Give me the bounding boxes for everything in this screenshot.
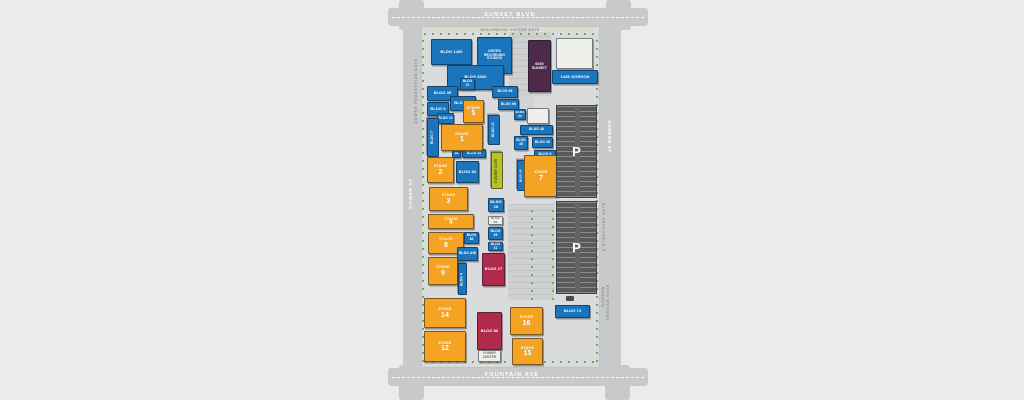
- stage-15[interactable]: STAGE15: [512, 338, 543, 365]
- building-10[interactable]: BLDG 10: [437, 113, 454, 124]
- building-29[interactable]: BLDG 29: [488, 227, 503, 240]
- stage-1[interactable]: STAGE1: [441, 124, 483, 151]
- stage-5[interactable]: STAGE5: [463, 100, 484, 123]
- gate-gower-pedestrian: GOWER PEDESTRIAN GATE: [414, 58, 418, 124]
- building-31[interactable]: BLDG 31: [488, 242, 503, 251]
- building-98-north[interactable]: BLDG 98: [492, 86, 518, 98]
- stage-12[interactable]: STAGE12: [424, 331, 466, 362]
- building-5b[interactable]: BLDG 5B: [488, 216, 503, 225]
- building-11[interactable]: BLDG 11: [488, 115, 500, 145]
- stage-9[interactable]: STAGE9: [428, 257, 458, 285]
- trees-top: [424, 33, 596, 35]
- building-28[interactable]: BLDG 28: [488, 198, 504, 212]
- gate-e-structure: E STRUCTURE GATE: [602, 202, 606, 251]
- parking-structure-south[interactable]: P: [556, 201, 597, 294]
- gate-gordon: GORDON: [601, 286, 605, 307]
- building-office[interactable]: [527, 108, 549, 124]
- building-1435-gordon[interactable]: 1435 GORDON: [552, 70, 598, 84]
- building-86[interactable]: BLDG 86: [477, 312, 502, 350]
- label-gower-st: GOWER ST: [408, 178, 413, 209]
- building-7[interactable]: BLDG 7: [427, 118, 439, 157]
- street-stub-bottom-right: [605, 365, 630, 400]
- label-sunset-blvd: SUNSET BLVD: [460, 12, 560, 18]
- label-gordon-st: GORDON ST: [607, 120, 612, 153]
- building-74[interactable]: BLDG 74: [555, 305, 590, 318]
- building-45[interactable]: BLDG 45: [514, 136, 528, 150]
- building-27[interactable]: BLDG 27: [482, 253, 505, 286]
- stage-3[interactable]: STAGE3: [429, 187, 468, 211]
- studio-lot-map: SUNSET BLVD FOUNTAIN AVE GOWER ST GORDON…: [0, 0, 1024, 400]
- building-gower-cafe[interactable]: GOWER CAFE: [491, 152, 503, 189]
- building-white-north[interactable]: [556, 38, 593, 69]
- building-12[interactable]: BLDG 12: [460, 78, 475, 90]
- building-power-center[interactable]: POWER CENTER: [478, 350, 501, 362]
- gate-gordon-service: SERVICE GATE: [606, 284, 610, 320]
- stage-2[interactable]: STAGE2: [427, 157, 454, 183]
- stage-14[interactable]: STAGE14: [424, 298, 466, 328]
- cart-icon: [566, 296, 574, 301]
- street-gordon-st: [600, 8, 621, 386]
- gate-beachwood-visitor: BEACHWOOD VISITOR GATE: [455, 28, 565, 32]
- stage-16[interactable]: STAGE16: [510, 307, 543, 335]
- label-fountain-ave: FOUNTAIN AVE: [462, 372, 562, 378]
- trees-parking-aisle-2: [552, 206, 554, 300]
- building-48[interactable]: BLDG 48: [520, 125, 553, 135]
- building-a-b[interactable]: BLDG A/B: [457, 247, 478, 261]
- building-88[interactable]: BLDG 88: [464, 232, 479, 244]
- stage-7[interactable]: STAGE7: [524, 155, 558, 197]
- parking-p-label-south: P: [572, 240, 581, 255]
- building-6040-sunset[interactable]: 6040 SUNSET: [528, 40, 551, 92]
- street-stub-bottom-left: [399, 365, 424, 400]
- building-39[interactable]: BLDG 39: [514, 109, 526, 120]
- stage-4[interactable]: STAGE4: [428, 214, 474, 229]
- building-82[interactable]: BLDG 82: [456, 161, 479, 183]
- parking-p-label-north: P: [572, 144, 581, 159]
- street-stub-top-right: [606, 0, 631, 30]
- building-4[interactable]: BLDG 4: [458, 263, 467, 295]
- building-46[interactable]: BLDG 46: [532, 137, 553, 148]
- trees-right: [596, 36, 598, 362]
- parking-structure-north[interactable]: P: [556, 105, 597, 198]
- building-1460[interactable]: BLDG 1460: [431, 39, 472, 65]
- trees-parking-aisle-1: [531, 206, 533, 300]
